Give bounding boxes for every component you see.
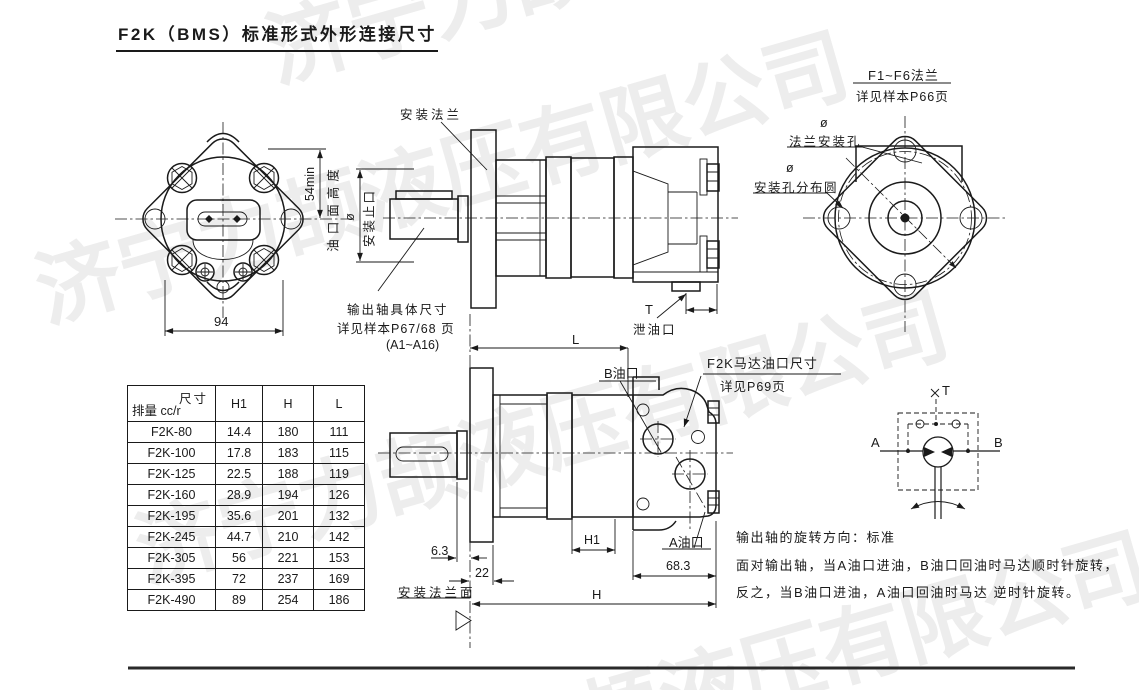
dim-h1: H1 [584,533,600,547]
spigot-label: 安装止口 [359,189,378,247]
dim-6-3: 6.3 [431,544,448,558]
col-header-h1: H1 [216,386,263,422]
schematic-drawing [880,389,1000,519]
corner-label-displacement: 排量 cc/r [132,400,181,419]
shaft-note-line3: (A1~A16) [386,338,439,352]
cell-h: 210 [263,527,314,548]
table-row: F2K-125 22.5 188 119 [128,464,365,485]
schematic-port-b: B [994,435,1003,450]
cell-h: 254 [263,590,314,611]
cell-h1: 56 [216,548,263,569]
cell-model: F2K-305 [128,548,216,569]
cell-h: 201 [263,506,314,527]
cell-l: 115 [314,443,365,464]
drain-tag: T [645,302,653,317]
schematic-port-a: A [871,435,880,450]
cell-h: 237 [263,569,314,590]
cell-model: F2K-160 [128,485,216,506]
cell-h: 221 [263,548,314,569]
cell-h: 183 [263,443,314,464]
dim-68-3: 68.3 [666,559,690,573]
front-view-drawing [115,122,355,336]
cell-model: F2K-195 [128,506,216,527]
table-header-row: 尺寸 排量 cc/r H1 H L [128,386,365,422]
table-row: F2K-80 14.4 180 111 [128,422,365,443]
schematic-port-t: T [942,383,950,398]
dim-h: H [592,587,601,602]
port-face-height-label: 油口面高度 [323,164,342,252]
cell-model: F2K-490 [128,590,216,611]
port-b-label: B油口 [604,363,639,382]
cell-l: 169 [314,569,365,590]
spigot-phi: ø [343,213,357,221]
cell-l: 111 [314,422,365,443]
cell-model: F2K-80 [128,422,216,443]
cell-h1: 22.5 [216,464,263,485]
table-row: F2K-305 56 221 153 [128,548,365,569]
cell-h1: 35.6 [216,506,263,527]
rotation-note-line2: 面对输出轴，当A油口进油，B油口回油时马达顺时针旋转， [736,555,1119,574]
cell-h1: 44.7 [216,527,263,548]
cell-l: 126 [314,485,365,506]
cell-h1: 17.8 [216,443,263,464]
spec-table: 尺寸 排量 cc/r H1 H L F2K-80 14.4 180 111 F2… [127,385,365,611]
table-corner-cell: 尺寸 排量 cc/r [128,386,216,422]
flange-view-drawing [753,83,1007,332]
rotation-note-line3: 反之，当B油口进油，A油口回油时马达 逆时针旋转。 [736,582,1080,601]
cell-model: F2K-125 [128,464,216,485]
cell-l: 142 [314,527,365,548]
cell-l: 153 [314,548,365,569]
flange-view-subtitle: 详见样本P66页 [856,86,949,105]
cell-h1: 89 [216,590,263,611]
port-a-label: A油口 [669,532,704,551]
cell-h: 180 [263,422,314,443]
flange-hole-label: 法兰安装孔 [789,131,862,150]
hole-circle-phi: ø [786,161,794,175]
flange-view-title: F1~F6法兰 [868,65,939,84]
cell-h1: 72 [216,569,263,590]
cell-h: 194 [263,485,314,506]
rotation-note-line1: 输出轴的旋转方向：标准 [736,527,896,546]
table-row: F2K-395 72 237 169 [128,569,365,590]
side-view-drawing [356,122,738,318]
corner-label-dim: 尺寸 [179,388,208,407]
cell-h1: 28.9 [216,485,263,506]
cell-model: F2K-245 [128,527,216,548]
drain-port-label: 泄油口 [633,319,677,338]
table-row: F2K-160 28.9 194 126 [128,485,365,506]
cell-model: F2K-395 [128,569,216,590]
table-row: F2K-100 17.8 183 115 [128,443,365,464]
flange-hole-phi: ø [820,116,828,130]
table-row: F2K-195 35.6 201 132 [128,506,365,527]
col-header-l: L [314,386,365,422]
cell-l: 119 [314,464,365,485]
hole-circle-label: 安装孔分布圆 [754,177,838,196]
front-width-dim: 94 [214,314,228,329]
port-note-line2: 详见P69页 [720,376,786,395]
table-row: F2K-490 89 254 186 [128,590,365,611]
front-height-dim: 54min [303,167,317,201]
port-note-line1: F2K马达油口尺寸 [707,353,818,372]
mounting-flange-label: 安装法兰 [400,104,462,123]
page: 济宁力颉液压有限公司 济宁力颉液压有限公司 济宁力颉液压有限公司 济宁力颉液压有… [0,0,1139,690]
dim-l: L [572,332,579,347]
page-title: F2K（BMS）标准形式外形连接尺寸 [118,20,437,45]
shaft-note-line1: 输出轴具体尺寸 [347,299,449,318]
shaft-note-line2: 详见样本P67/68 页 [337,318,455,337]
cell-h: 188 [263,464,314,485]
col-header-h: H [263,386,314,422]
cell-h1: 14.4 [216,422,263,443]
title-underline [116,50,438,52]
cell-model: F2K-100 [128,443,216,464]
dim-22: 22 [475,566,489,580]
flange-face-label: 安装法兰面 [398,582,476,601]
table-row: F2K-245 44.7 210 142 [128,527,365,548]
cell-l: 132 [314,506,365,527]
cell-l: 186 [314,590,365,611]
